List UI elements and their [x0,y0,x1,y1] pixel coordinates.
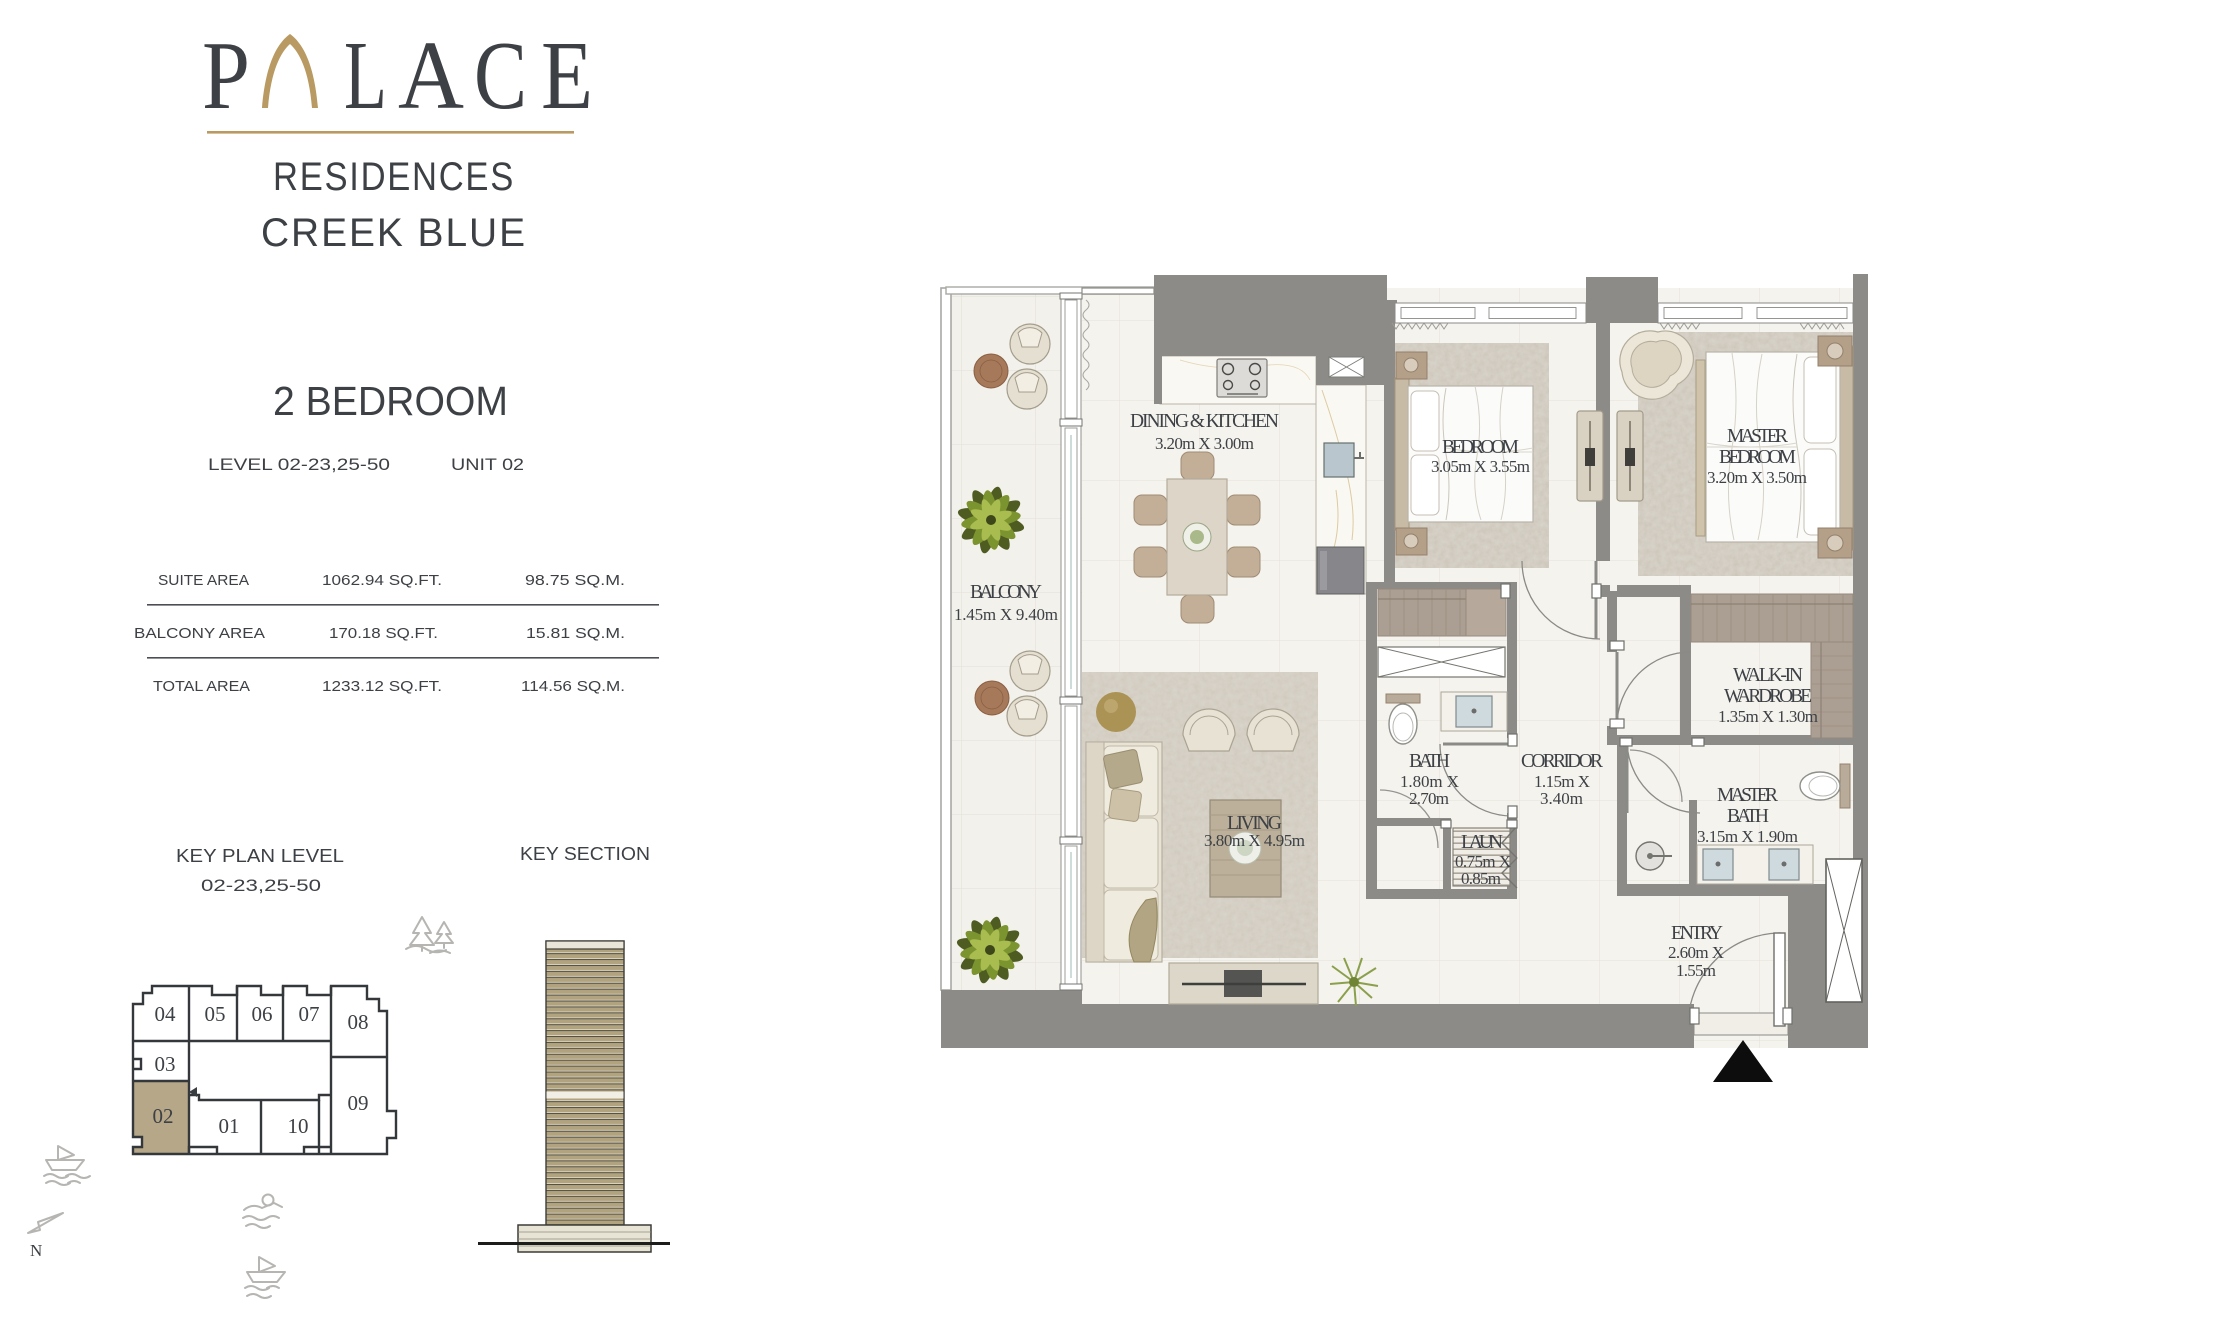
svg-text:2 BEDROOM: 2 BEDROOM [273,378,508,424]
svg-text:N: N [30,1241,42,1260]
svg-text:P: P [202,22,250,129]
svg-text:02: 02 [153,1104,174,1128]
svg-text:LEVEL 02-23,25-50: LEVEL 02-23,25-50 [208,455,390,474]
svg-text:1.45m X 9.40m: 1.45m X 9.40m [954,605,1058,624]
svg-text:3.20m X 3.50m: 3.20m X 3.50m [1707,468,1807,487]
svg-text:0.85m: 0.85m [1461,869,1501,888]
svg-text:WALK-IN: WALK-IN [1733,665,1803,686]
svg-text:LAUN: LAUN [1461,832,1503,853]
svg-text:BATH: BATH [1409,751,1450,772]
svg-text:BEDROOM: BEDROOM [1442,437,1519,458]
svg-text:BEDROOM: BEDROOM [1719,447,1796,468]
svg-text:RESIDENCES: RESIDENCES [273,155,515,199]
svg-text:3.05m X 3.55m: 3.05m X 3.55m [1431,457,1530,476]
svg-text:TOTAL AREA: TOTAL AREA [153,679,250,695]
svg-text:MASTER: MASTER [1727,426,1788,447]
svg-text:03: 03 [155,1052,176,1076]
svg-text:05: 05 [205,1002,226,1026]
svg-text:KEY SECTION: KEY SECTION [520,844,650,864]
svg-text:3.40m: 3.40m [1540,789,1583,808]
svg-text:C: C [474,22,527,129]
svg-text:01: 01 [219,1114,240,1138]
svg-text:07: 07 [299,1002,320,1026]
svg-text:3.20m X 3.00m: 3.20m X 3.00m [1155,434,1254,453]
svg-text:ENTRY: ENTRY [1671,923,1723,944]
svg-text:1062.94 SQ.FT.: 1062.94 SQ.FT. [322,573,442,589]
svg-text:E: E [541,22,593,129]
svg-text:SUITE AREA: SUITE AREA [158,573,249,589]
svg-text:2.70m: 2.70m [1409,789,1449,808]
svg-text:KEY PLAN LEVEL: KEY PLAN LEVEL [176,846,344,866]
svg-text:06: 06 [252,1002,273,1026]
svg-text:MASTER: MASTER [1717,785,1778,806]
svg-text:DINING & KITCHEN: DINING & KITCHEN [1130,411,1279,432]
svg-text:98.75 SQ.M.: 98.75 SQ.M. [525,573,625,589]
svg-text:3.80m X 4.95m: 3.80m X 4.95m [1204,831,1305,850]
svg-text:A: A [398,22,464,129]
svg-text:10: 10 [288,1114,309,1138]
svg-text:04: 04 [155,1002,177,1026]
svg-text:WARDROBE: WARDROBE [1724,686,1812,707]
svg-text:CREEK BLUE: CREEK BLUE [261,211,527,255]
svg-text:15.81 SQ.M.: 15.81 SQ.M. [526,626,625,642]
svg-text:BALCONY AREA: BALCONY AREA [134,626,265,642]
svg-text:02-23,25-50: 02-23,25-50 [201,876,321,895]
svg-text:1.55m: 1.55m [1676,961,1716,980]
svg-text:1.35m X 1.30m: 1.35m X 1.30m [1718,707,1818,726]
svg-text:CORRIDOR: CORRIDOR [1521,751,1603,772]
svg-text:BALCONY: BALCONY [970,582,1042,603]
svg-text:114.56 SQ.M.: 114.56 SQ.M. [521,679,625,695]
svg-text:09: 09 [348,1091,369,1115]
svg-text:3.15m X 1.90m: 3.15m X 1.90m [1697,827,1798,846]
svg-text:L: L [344,22,387,129]
svg-text:170.18 SQ.FT.: 170.18 SQ.FT. [329,626,438,642]
svg-text:08: 08 [348,1010,369,1034]
svg-text:UNIT 02: UNIT 02 [451,455,524,474]
svg-text:1233.12 SQ.FT.: 1233.12 SQ.FT. [322,679,442,695]
svg-text:2.60m X: 2.60m X [1668,943,1724,962]
svg-text:BATH: BATH [1727,806,1769,827]
